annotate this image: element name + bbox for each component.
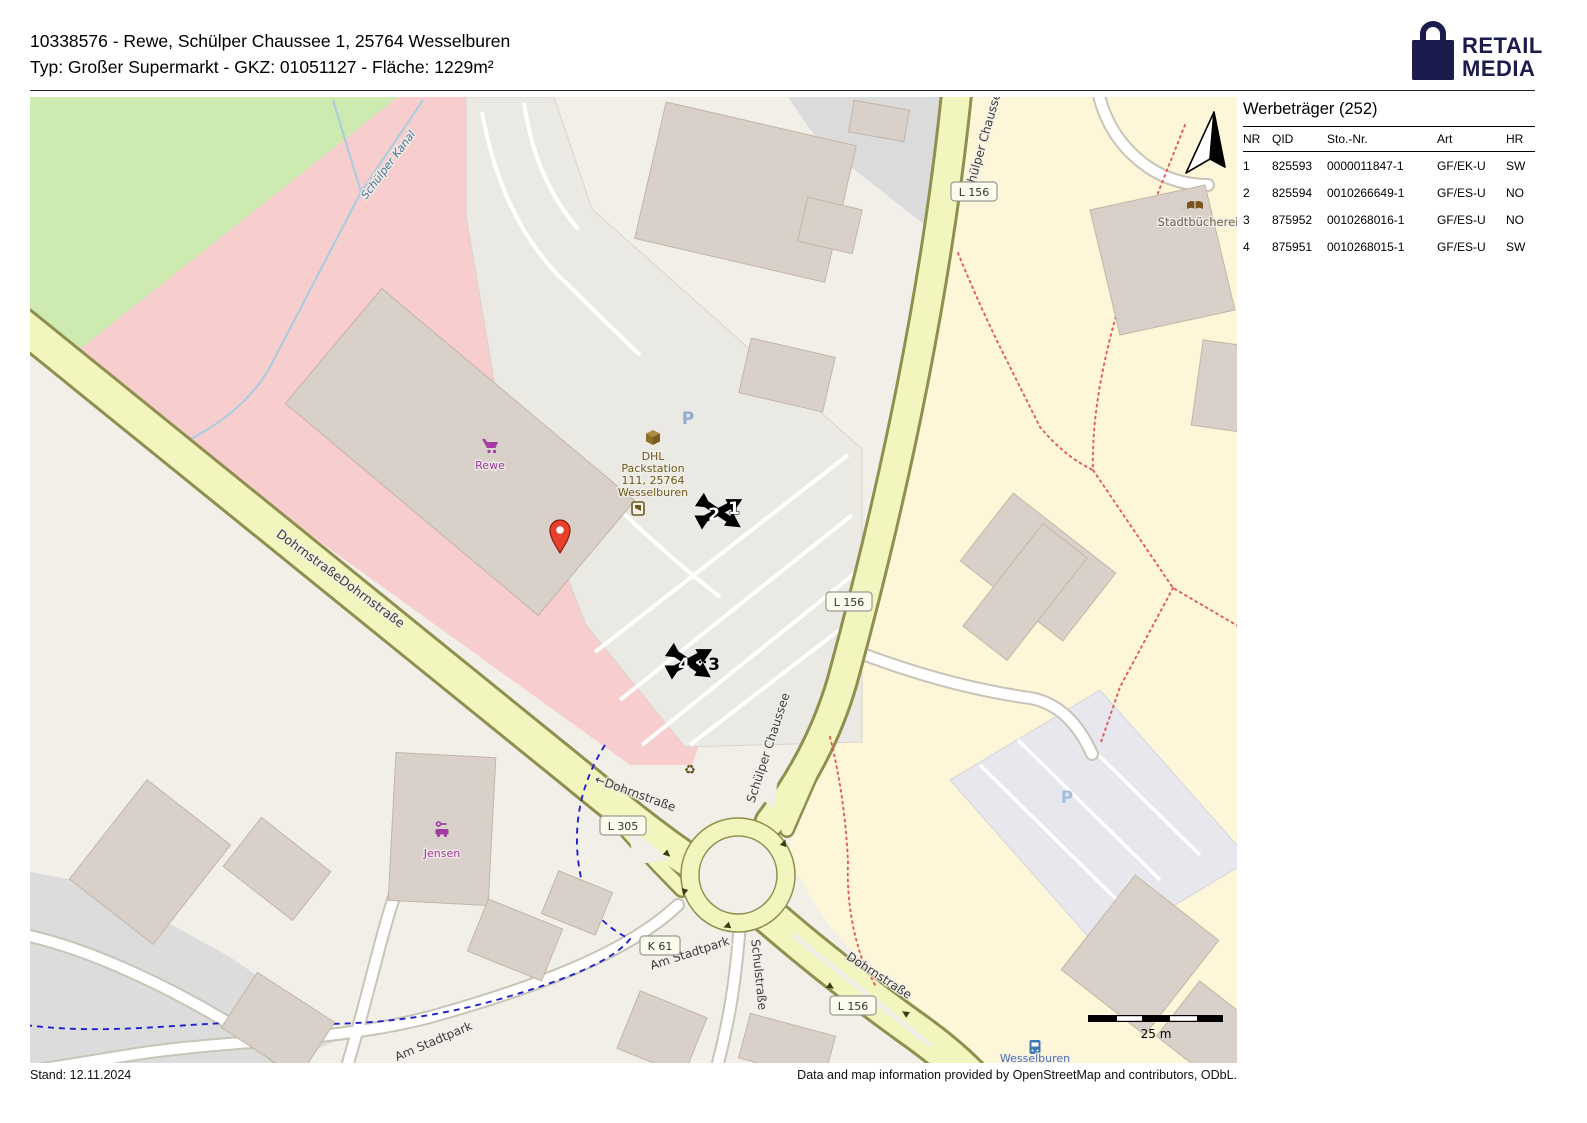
marker-2: 2 [708,505,720,525]
logo-text: RETAIL MEDIA [1462,34,1543,80]
table-row: 28255940010266649-1GF/ES-UNO [1243,179,1535,206]
parking-icon-north: P [682,409,694,429]
header-line2: Typ: Großer Supermarkt - GKZ: 01051127 -… [30,54,510,80]
table-header-row: NR QID Sto.-Nr. Art HR [1243,127,1535,152]
footer-attribution: Data and map information provided by Ope… [797,1068,1237,1082]
vending-machine-icon [632,502,644,515]
retail-media-logo: RETAIL MEDIA [1410,20,1543,82]
col-qid: QID [1272,127,1327,152]
marker-1: 1 [728,499,740,519]
logo-line1: RETAIL [1462,34,1543,57]
label-wesselburen-stop: Wesselburen [1000,1052,1070,1063]
cell-qid: 875951 [1272,233,1327,260]
recycling-icon: ♻ [684,763,696,778]
footer-stand: Stand: 12.11.2024 [30,1068,131,1082]
cell-hr: SW [1506,233,1535,260]
book-icon [1187,201,1203,209]
werbetraeger-panel: Werbeträger (252) NR QID Sto.-Nr. Art HR… [1243,100,1535,260]
cell-art: GF/ES-U [1437,233,1506,260]
marker-3: 3 [708,655,720,675]
svg-text:L 156: L 156 [959,186,990,199]
cell-nr: 2 [1243,179,1272,206]
cell-hr: NO [1506,179,1535,206]
table-row: 38759520010268016-1GF/ES-UNO [1243,206,1535,233]
svg-text:Wesselburen: Wesselburen [618,486,688,499]
cell-qid: 825594 [1272,179,1327,206]
cell-nr: 3 [1243,206,1272,233]
svg-text:L 305: L 305 [608,820,639,833]
label-jensen: Jensen [423,847,460,860]
table-row: 48759510010268015-1GF/ES-USW [1243,233,1535,260]
badge-l156-mid: L 156 [826,592,872,611]
svg-text:L 156: L 156 [834,596,865,609]
badge-l305: L 305 [600,816,646,835]
cell-nr: 1 [1243,152,1272,180]
cell-sto: 0010268016-1 [1327,206,1437,233]
cell-hr: SW [1506,152,1535,180]
logo-line2: MEDIA [1462,57,1543,80]
badge-l156-top: L 156 [951,182,997,201]
marker-4: 4 [678,655,690,675]
col-nr: NR [1243,127,1272,152]
table-row: 18255930000011847-1GF/EK-USW [1243,152,1535,180]
panel-title: Werbeträger (252) [1243,100,1535,119]
report-page: 10338576 - Rewe, Schülper Chaussee 1, 25… [0,0,1587,1123]
parking-icon-east: P [1061,788,1073,808]
cell-art: GF/EK-U [1437,152,1506,180]
header-line1: 10338576 - Rewe, Schülper Chaussee 1, 25… [30,28,510,54]
col-sto-nr: Sto.-Nr. [1327,127,1437,152]
osm-map: Schülper Kanal DohrnstraßeDohrnstraße ←D… [30,97,1237,1063]
header: 10338576 - Rewe, Schülper Chaussee 1, 25… [30,28,510,80]
cell-qid: 825593 [1272,152,1327,180]
werbetraeger-table: NR QID Sto.-Nr. Art HR 18255930000011847… [1243,126,1535,260]
scale-label: 25 m [1141,1027,1172,1041]
badge-k61: K 61 [640,936,680,955]
cell-art: GF/ES-U [1437,179,1506,206]
label-rewe: Rewe [475,459,505,472]
col-art: Art [1437,127,1506,152]
cell-nr: 4 [1243,233,1272,260]
col-hr: HR [1506,127,1535,152]
svg-text:K 61: K 61 [648,940,673,953]
svg-text:L 156: L 156 [838,1000,869,1013]
cell-sto: 0010266649-1 [1327,179,1437,206]
badge-l156-se: L 156 [830,996,876,1015]
header-divider [30,90,1535,91]
shopping-bag-icon [1410,20,1456,82]
cell-hr: NO [1506,206,1535,233]
cell-sto: 0000011847-1 [1327,152,1437,180]
cell-sto: 0010268015-1 [1327,233,1437,260]
footer: Stand: 12.11.2024 Data and map informati… [30,1068,1237,1082]
cell-art: GF/ES-U [1437,206,1506,233]
label-stadtbuecherei: Stadtbücherei [1158,215,1237,229]
map-canvas[interactable]: Schülper Kanal DohrnstraßeDohrnstraße ←D… [30,97,1237,1063]
cell-qid: 875952 [1272,206,1327,233]
